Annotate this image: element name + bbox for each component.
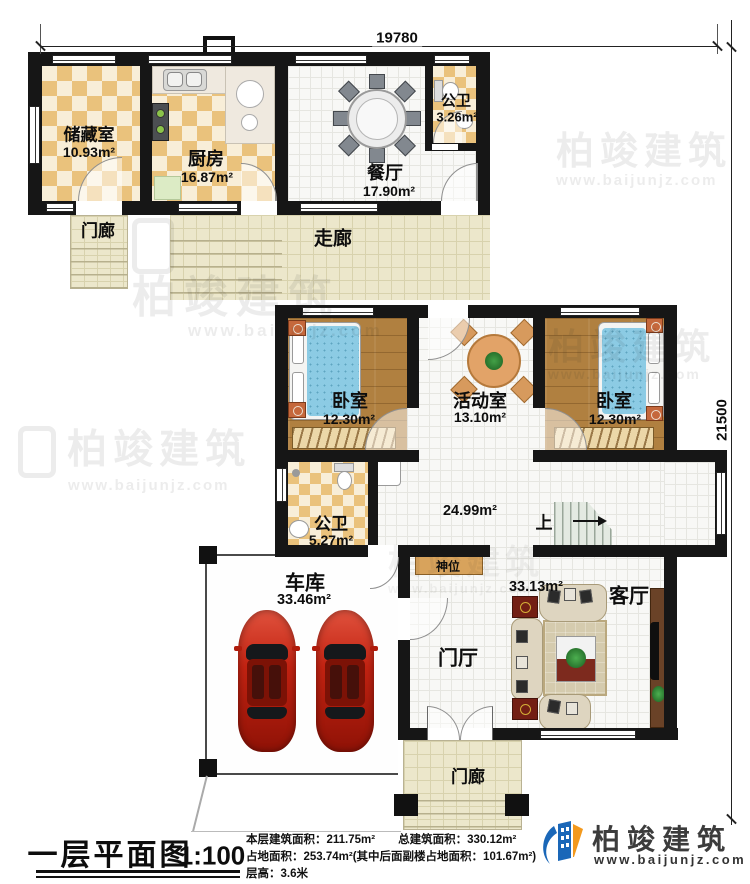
car-rear-glass xyxy=(247,707,287,719)
wall xyxy=(275,66,288,201)
door-opening xyxy=(241,201,277,215)
sofa-pillow xyxy=(547,699,561,714)
room-area-storage: 10.93m² xyxy=(63,144,115,160)
sofa-pillow xyxy=(579,589,593,604)
brand-logo-icon xyxy=(538,816,590,868)
room-area-hall: 24.99m² xyxy=(443,503,497,519)
wall xyxy=(533,545,727,557)
wall xyxy=(368,462,378,545)
side-table xyxy=(512,596,538,618)
room-label-bedroom-right: 卧室 xyxy=(596,387,632,413)
stats-line-2: 占地面积：253.74m²(其中后面副楼占地面积：101.67m²) xyxy=(246,848,536,864)
room-label-kitchen: 厨房 xyxy=(188,145,224,171)
stairs-arrow xyxy=(573,520,599,522)
room-label-corridor: 走廊 xyxy=(314,224,352,251)
window xyxy=(52,55,116,64)
plan-title: 一层平面图 xyxy=(28,830,193,874)
nightstand xyxy=(646,406,663,421)
stats-line-3: 层高：3.6米 xyxy=(246,865,308,881)
car-roof xyxy=(247,659,287,706)
sofa-pillow xyxy=(516,680,528,693)
side-table xyxy=(512,698,538,720)
car-rear-glass xyxy=(325,707,365,719)
wall xyxy=(664,557,677,740)
kitchen-basin xyxy=(236,80,264,108)
shower-head xyxy=(292,469,300,477)
garage-column xyxy=(199,546,217,564)
window xyxy=(295,55,367,64)
wall xyxy=(275,450,419,462)
tv xyxy=(650,622,659,680)
kitchen-mat xyxy=(154,176,181,200)
window xyxy=(29,106,40,164)
porch-top-steps xyxy=(70,248,128,289)
dining-table-inner xyxy=(356,98,398,140)
washing-machine xyxy=(374,458,401,486)
watermark: 柏竣建筑 www.baijunjz.com xyxy=(556,132,732,189)
wall xyxy=(476,52,490,215)
window xyxy=(540,730,636,739)
room-label-porch-top: 门廊 xyxy=(81,217,115,242)
activity-plant xyxy=(485,352,503,370)
door-opening xyxy=(398,598,410,640)
room-area-kitchen: 16.87m² xyxy=(181,169,233,185)
window xyxy=(300,203,378,212)
extension-line xyxy=(717,24,718,54)
room-area-dining: 17.90m² xyxy=(363,183,415,199)
car-mirror xyxy=(370,646,378,651)
room-label-dining: 餐厅 xyxy=(367,159,403,185)
porch-column xyxy=(505,794,529,816)
room-label-foyer: 门厅 xyxy=(438,642,478,671)
washbasin xyxy=(289,520,309,538)
window xyxy=(178,203,238,212)
room-area-bath-mid: 5.27m² xyxy=(309,532,353,548)
room-label-bedroom-left: 卧室 xyxy=(332,387,368,413)
floor-plan: 柏竣建筑 www.baijunjz.com 柏竣建筑 www.baijunjz.… xyxy=(0,0,750,884)
wall xyxy=(275,305,288,557)
stairs-up-label: 上 xyxy=(536,509,553,534)
room-label-living: 客厅 xyxy=(609,580,649,609)
corridor-steps xyxy=(170,240,282,300)
brand-logo: 柏竣建筑 www.baijunjz.com xyxy=(538,816,738,872)
dimension-top-value: 19780 xyxy=(372,30,422,47)
window xyxy=(434,55,470,64)
car-windshield xyxy=(246,644,288,660)
sofa-pillow xyxy=(516,656,528,669)
car-mirror xyxy=(292,646,300,651)
room-area-bedroom-left: 12.30m² xyxy=(323,411,375,427)
room-area-bedroom-right: 12.30m² xyxy=(589,411,641,427)
wall xyxy=(533,318,545,408)
window xyxy=(716,472,726,535)
door-opening xyxy=(441,201,478,215)
nightstand xyxy=(288,402,306,418)
brand-url: www.baijunjz.com xyxy=(594,852,746,867)
pillow xyxy=(648,332,660,364)
wall xyxy=(407,318,419,408)
car-mirror xyxy=(312,646,320,651)
room-area-activity: 13.10m² xyxy=(454,409,506,425)
room-area-garage: 33.46m² xyxy=(277,592,331,608)
car xyxy=(316,610,374,752)
hall-bump-floor xyxy=(664,462,715,545)
window xyxy=(560,307,640,316)
door-opening xyxy=(368,545,398,557)
stats-line-1: 本层建筑面积：211.75m² 总建筑面积：330.12m² xyxy=(246,831,516,847)
sofa-pillow xyxy=(516,630,528,643)
stairs-arrowhead xyxy=(598,516,607,526)
room-area-bath-top: 3.26m² xyxy=(436,110,477,125)
extension-line xyxy=(40,24,41,54)
room-label-bath-mid: 公卫 xyxy=(314,510,348,535)
pillow xyxy=(292,372,304,406)
car-windshield xyxy=(324,644,366,660)
toilet-bowl xyxy=(337,471,352,490)
kitchen-sink-bowl xyxy=(186,72,202,87)
wall xyxy=(398,557,410,728)
window xyxy=(148,55,232,64)
dimension-right-value: 21500 xyxy=(714,395,731,445)
window xyxy=(46,203,74,212)
dimension-line-right xyxy=(731,20,732,825)
shrine-label: 神位 xyxy=(436,558,460,575)
door-opening xyxy=(76,201,122,215)
sofa-pillow xyxy=(566,702,578,715)
car-mirror xyxy=(234,646,242,651)
door-opening xyxy=(432,144,458,150)
nightstand xyxy=(288,320,306,336)
window xyxy=(302,307,374,316)
kitchen-basin xyxy=(241,114,258,131)
sofa-pillow xyxy=(564,588,576,601)
driveway-edge xyxy=(192,776,208,832)
room-label-storage: 储藏室 xyxy=(64,121,115,146)
kitchen-sink-bowl xyxy=(167,72,183,87)
stove-burner xyxy=(156,125,165,134)
pillow xyxy=(648,372,660,404)
watermark: 柏竣建筑 www.baijunjz.com xyxy=(18,426,251,494)
car xyxy=(238,610,296,752)
coffee-table-plant xyxy=(566,648,586,668)
nightstand xyxy=(646,318,663,333)
room-label-bath-top: 公卫 xyxy=(441,90,471,111)
watermark-logo-icon xyxy=(132,218,174,274)
window xyxy=(276,468,287,502)
wall xyxy=(398,545,490,557)
stove-burner xyxy=(156,109,165,118)
garage-column xyxy=(199,759,217,777)
door-opening xyxy=(428,305,468,318)
wall xyxy=(140,66,152,201)
car-roof xyxy=(325,659,365,706)
porch-column xyxy=(394,794,418,816)
wall xyxy=(664,305,677,452)
dining-chair xyxy=(369,74,385,89)
title-underline xyxy=(36,870,240,873)
dining-chair xyxy=(405,111,421,126)
title-underline xyxy=(36,876,240,878)
wall xyxy=(533,450,727,462)
plan-scale: 1:100 xyxy=(179,841,246,872)
room-label-porch-bottom: 门廊 xyxy=(451,763,485,788)
wall xyxy=(425,62,433,147)
room-area-living: 33.13m² xyxy=(509,579,563,595)
